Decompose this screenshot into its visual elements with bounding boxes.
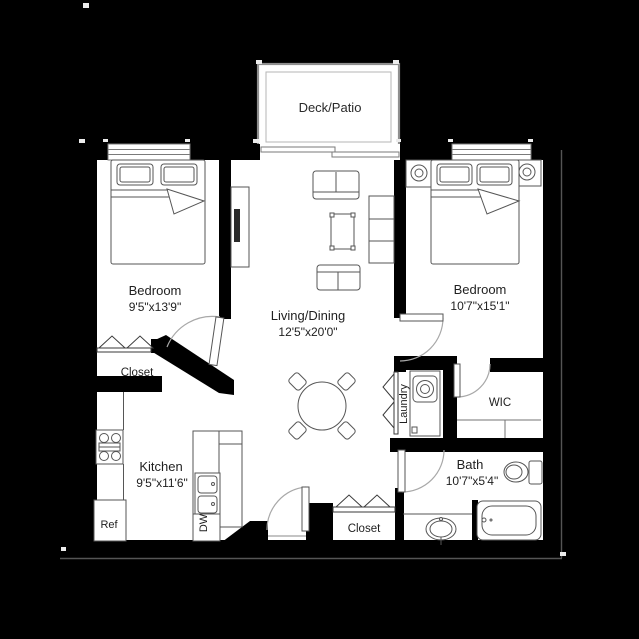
bedroom-right-name: Bedroom [454,282,507,297]
wall-entry-closet [306,503,333,541]
living-dims: 12'5"x20'0" [278,325,337,339]
closet-left-label: Closet [121,367,154,379]
floor-plan-svg: Deck/Patio [0,0,639,639]
wall-left [78,144,97,557]
bedroom-left [111,160,205,264]
laundry-label: Laundry [398,384,410,424]
washer-icon [410,371,440,436]
wall-bottom [78,540,560,557]
windows [108,144,531,160]
sofa-icon [317,265,360,290]
wall-right [543,144,560,557]
deck-patio: Deck/Patio [258,64,399,150]
shelf-unit-icon [369,196,394,263]
window-icon [108,144,190,160]
door-leaf [400,314,443,321]
wall-wic-top [490,358,543,372]
wall [400,144,452,160]
kitchen-sink-icon [195,473,220,514]
tv-console-icon [231,187,249,267]
kitchen-dims: 9'5"x11'6" [136,476,188,490]
living-name: Living/Dining [271,308,345,323]
dining-table-icon [288,372,357,441]
refrigerator-label: Ref [100,519,118,531]
window-icon [452,144,531,160]
dishwasher-label: DW [198,513,210,532]
bedroom-left-dims: 9'5"x13'9" [129,300,181,314]
door-leaf [302,487,309,531]
deck-label: Deck/Patio [299,100,362,115]
bed-icon [111,160,205,264]
sliding-door-icon [260,144,400,160]
nightstand-icon [406,160,433,187]
sofa-icon [313,171,359,199]
wall-closet-bath [395,488,404,541]
bifold-track [333,507,395,512]
bedroom-left-name: Bedroom [129,283,182,298]
bathtub-icon [477,501,541,540]
bath-dims: 10'7"x5'4" [446,474,498,488]
door-leaf [454,364,460,397]
toilet-icon [504,461,542,484]
closet-entry-label: Closet [348,523,381,535]
bath-name: Bath [457,457,484,472]
kitchen-name: Kitchen [139,459,182,474]
coffee-table-icon [330,213,355,250]
bed-icon [431,160,519,264]
wall-bath-top [390,438,543,452]
wall-living-bedroom2 [394,144,406,318]
bifold-track [97,348,151,352]
bedroom-right-dims: 10'7"x15'1" [450,299,509,313]
wall-bedroom1-living [219,144,231,319]
stove-icon [96,430,123,464]
wic-label: WIC [489,397,511,409]
floor-plan-image: Deck/Patio [0,0,639,639]
door-leaf [398,450,405,492]
